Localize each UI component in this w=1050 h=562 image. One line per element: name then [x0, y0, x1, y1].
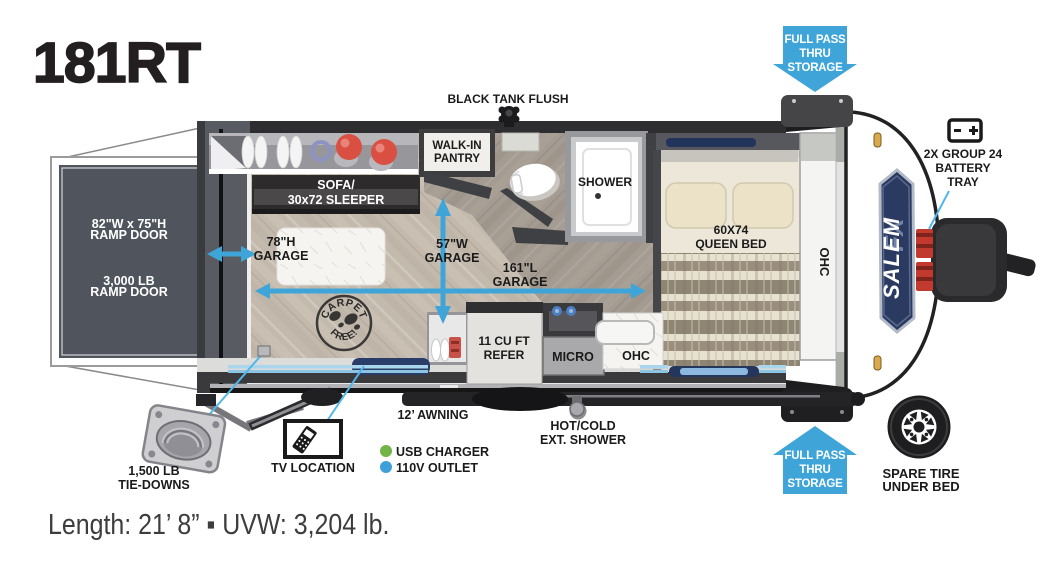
- svg-text:WALK-IN: WALK-IN: [432, 140, 481, 152]
- svg-text:FULL PASS: FULL PASS: [784, 34, 846, 46]
- svg-text:MICRO: MICRO: [552, 350, 594, 364]
- svg-text:OHC: OHC: [817, 248, 832, 278]
- svg-text:SOFA/: SOFA/: [317, 178, 355, 192]
- svg-text:HOT/COLD: HOT/COLD: [550, 419, 615, 433]
- svg-text:GARAGE: GARAGE: [493, 275, 548, 289]
- svg-text:161"L: 161"L: [503, 261, 538, 275]
- svg-text:181RT: 181RT: [33, 31, 201, 95]
- svg-text:78"H: 78"H: [267, 235, 296, 249]
- svg-text:EXT. SHOWER: EXT. SHOWER: [540, 433, 626, 447]
- svg-text:FULL PASS: FULL PASS: [784, 450, 846, 462]
- svg-text:12’ AWNING: 12’ AWNING: [397, 408, 468, 422]
- svg-text:STORAGE: STORAGE: [787, 478, 843, 490]
- svg-text:OHC: OHC: [622, 349, 650, 363]
- svg-text:2X GROUP 24: 2X GROUP 24: [924, 147, 1003, 161]
- svg-text:RAMP DOOR: RAMP DOOR: [90, 285, 168, 299]
- svg-text:1,500 LB: 1,500 LB: [128, 464, 179, 478]
- svg-text:SALEM: SALEM: [879, 217, 904, 299]
- svg-text:THRU: THRU: [799, 464, 830, 476]
- svg-text:TIE-DOWNS: TIE-DOWNS: [118, 478, 190, 492]
- svg-text:UNDER BED: UNDER BED: [882, 479, 959, 494]
- svg-text:30x72 SLEEPER: 30x72 SLEEPER: [288, 193, 385, 207]
- svg-text:BLACK TANK FLUSH: BLACK TANK FLUSH: [447, 92, 568, 106]
- svg-text:REFER: REFER: [484, 348, 525, 362]
- svg-text:THRU: THRU: [799, 48, 830, 60]
- svg-text:USB CHARGER: USB CHARGER: [396, 445, 489, 459]
- svg-text:RAMP DOOR: RAMP DOOR: [90, 228, 168, 242]
- svg-text:SHOWER: SHOWER: [578, 175, 632, 189]
- svg-text:Length: 21’ 8” ▪ UVW: 3,204 lb: Length: 21’ 8” ▪ UVW: 3,204 lb.: [48, 508, 389, 540]
- svg-text:110V OUTLET: 110V OUTLET: [396, 461, 478, 475]
- svg-text:TRAY: TRAY: [947, 175, 979, 189]
- svg-text:GARAGE: GARAGE: [254, 249, 309, 263]
- svg-text:STORAGE: STORAGE: [787, 62, 843, 74]
- svg-text:57"W: 57"W: [436, 237, 468, 251]
- svg-text:TV LOCATION: TV LOCATION: [271, 461, 355, 475]
- svg-text:BATTERY: BATTERY: [935, 161, 990, 175]
- svg-text:GARAGE: GARAGE: [425, 251, 480, 265]
- svg-text:60X74: 60X74: [714, 223, 749, 237]
- svg-text:PANTRY: PANTRY: [434, 153, 480, 165]
- svg-text:QUEEN BED: QUEEN BED: [695, 237, 767, 251]
- svg-text:11 CU FT: 11 CU FT: [478, 334, 530, 348]
